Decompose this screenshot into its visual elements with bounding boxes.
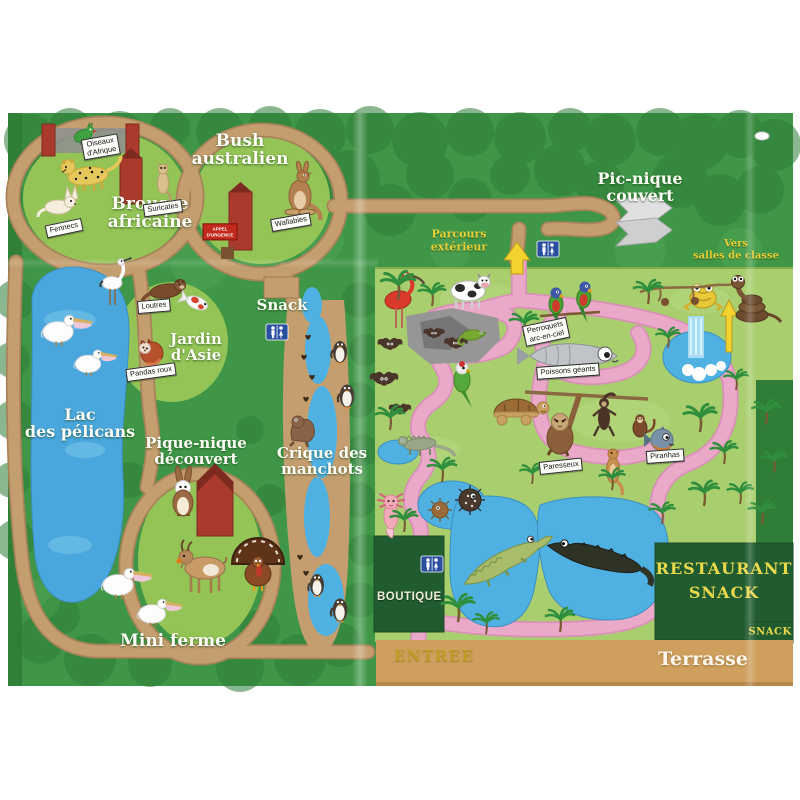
toilets-icon-boutique	[421, 556, 443, 572]
zoo-map-photo	[0, 0, 800, 800]
toilets-icon-snack	[266, 324, 288, 340]
terrasse-strip	[376, 640, 793, 686]
zoo-map-page: Brousseafricaine Bushaustralien Pic-niqu…	[0, 0, 800, 800]
snack-corner-box	[748, 622, 793, 643]
boutique-box	[374, 536, 444, 632]
porcupinefish-icon	[455, 485, 485, 515]
toilets-icon-outdoor	[537, 241, 559, 257]
pufferfish-icon	[428, 498, 452, 522]
barn-icon-brousse	[120, 148, 142, 204]
snack-kiosk	[264, 277, 299, 298]
cockatoo-icon	[755, 132, 769, 140]
